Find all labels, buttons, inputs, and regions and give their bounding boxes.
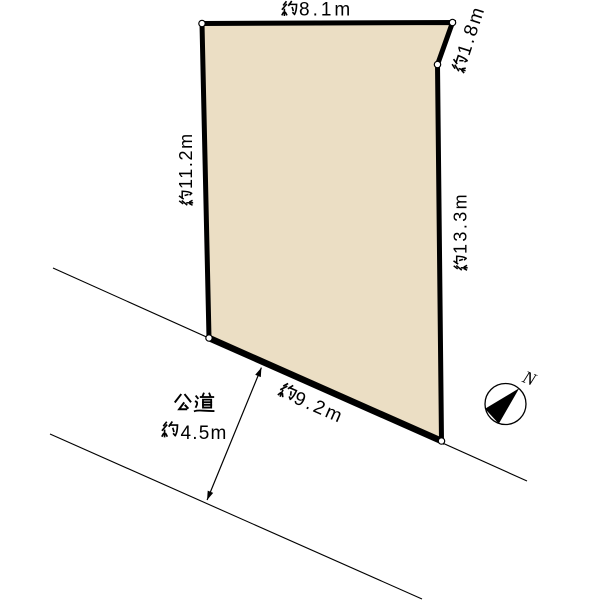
svg-text:11.2m: 11.2m xyxy=(176,132,196,189)
svg-text:13.3m: 13.3m xyxy=(451,192,471,254)
svg-text:1.8m: 1.8m xyxy=(454,3,490,58)
svg-text:8.1m: 8.1m xyxy=(299,0,353,21)
svg-text:4.5m: 4.5m xyxy=(181,423,228,444)
svg-text:N: N xyxy=(519,366,539,390)
